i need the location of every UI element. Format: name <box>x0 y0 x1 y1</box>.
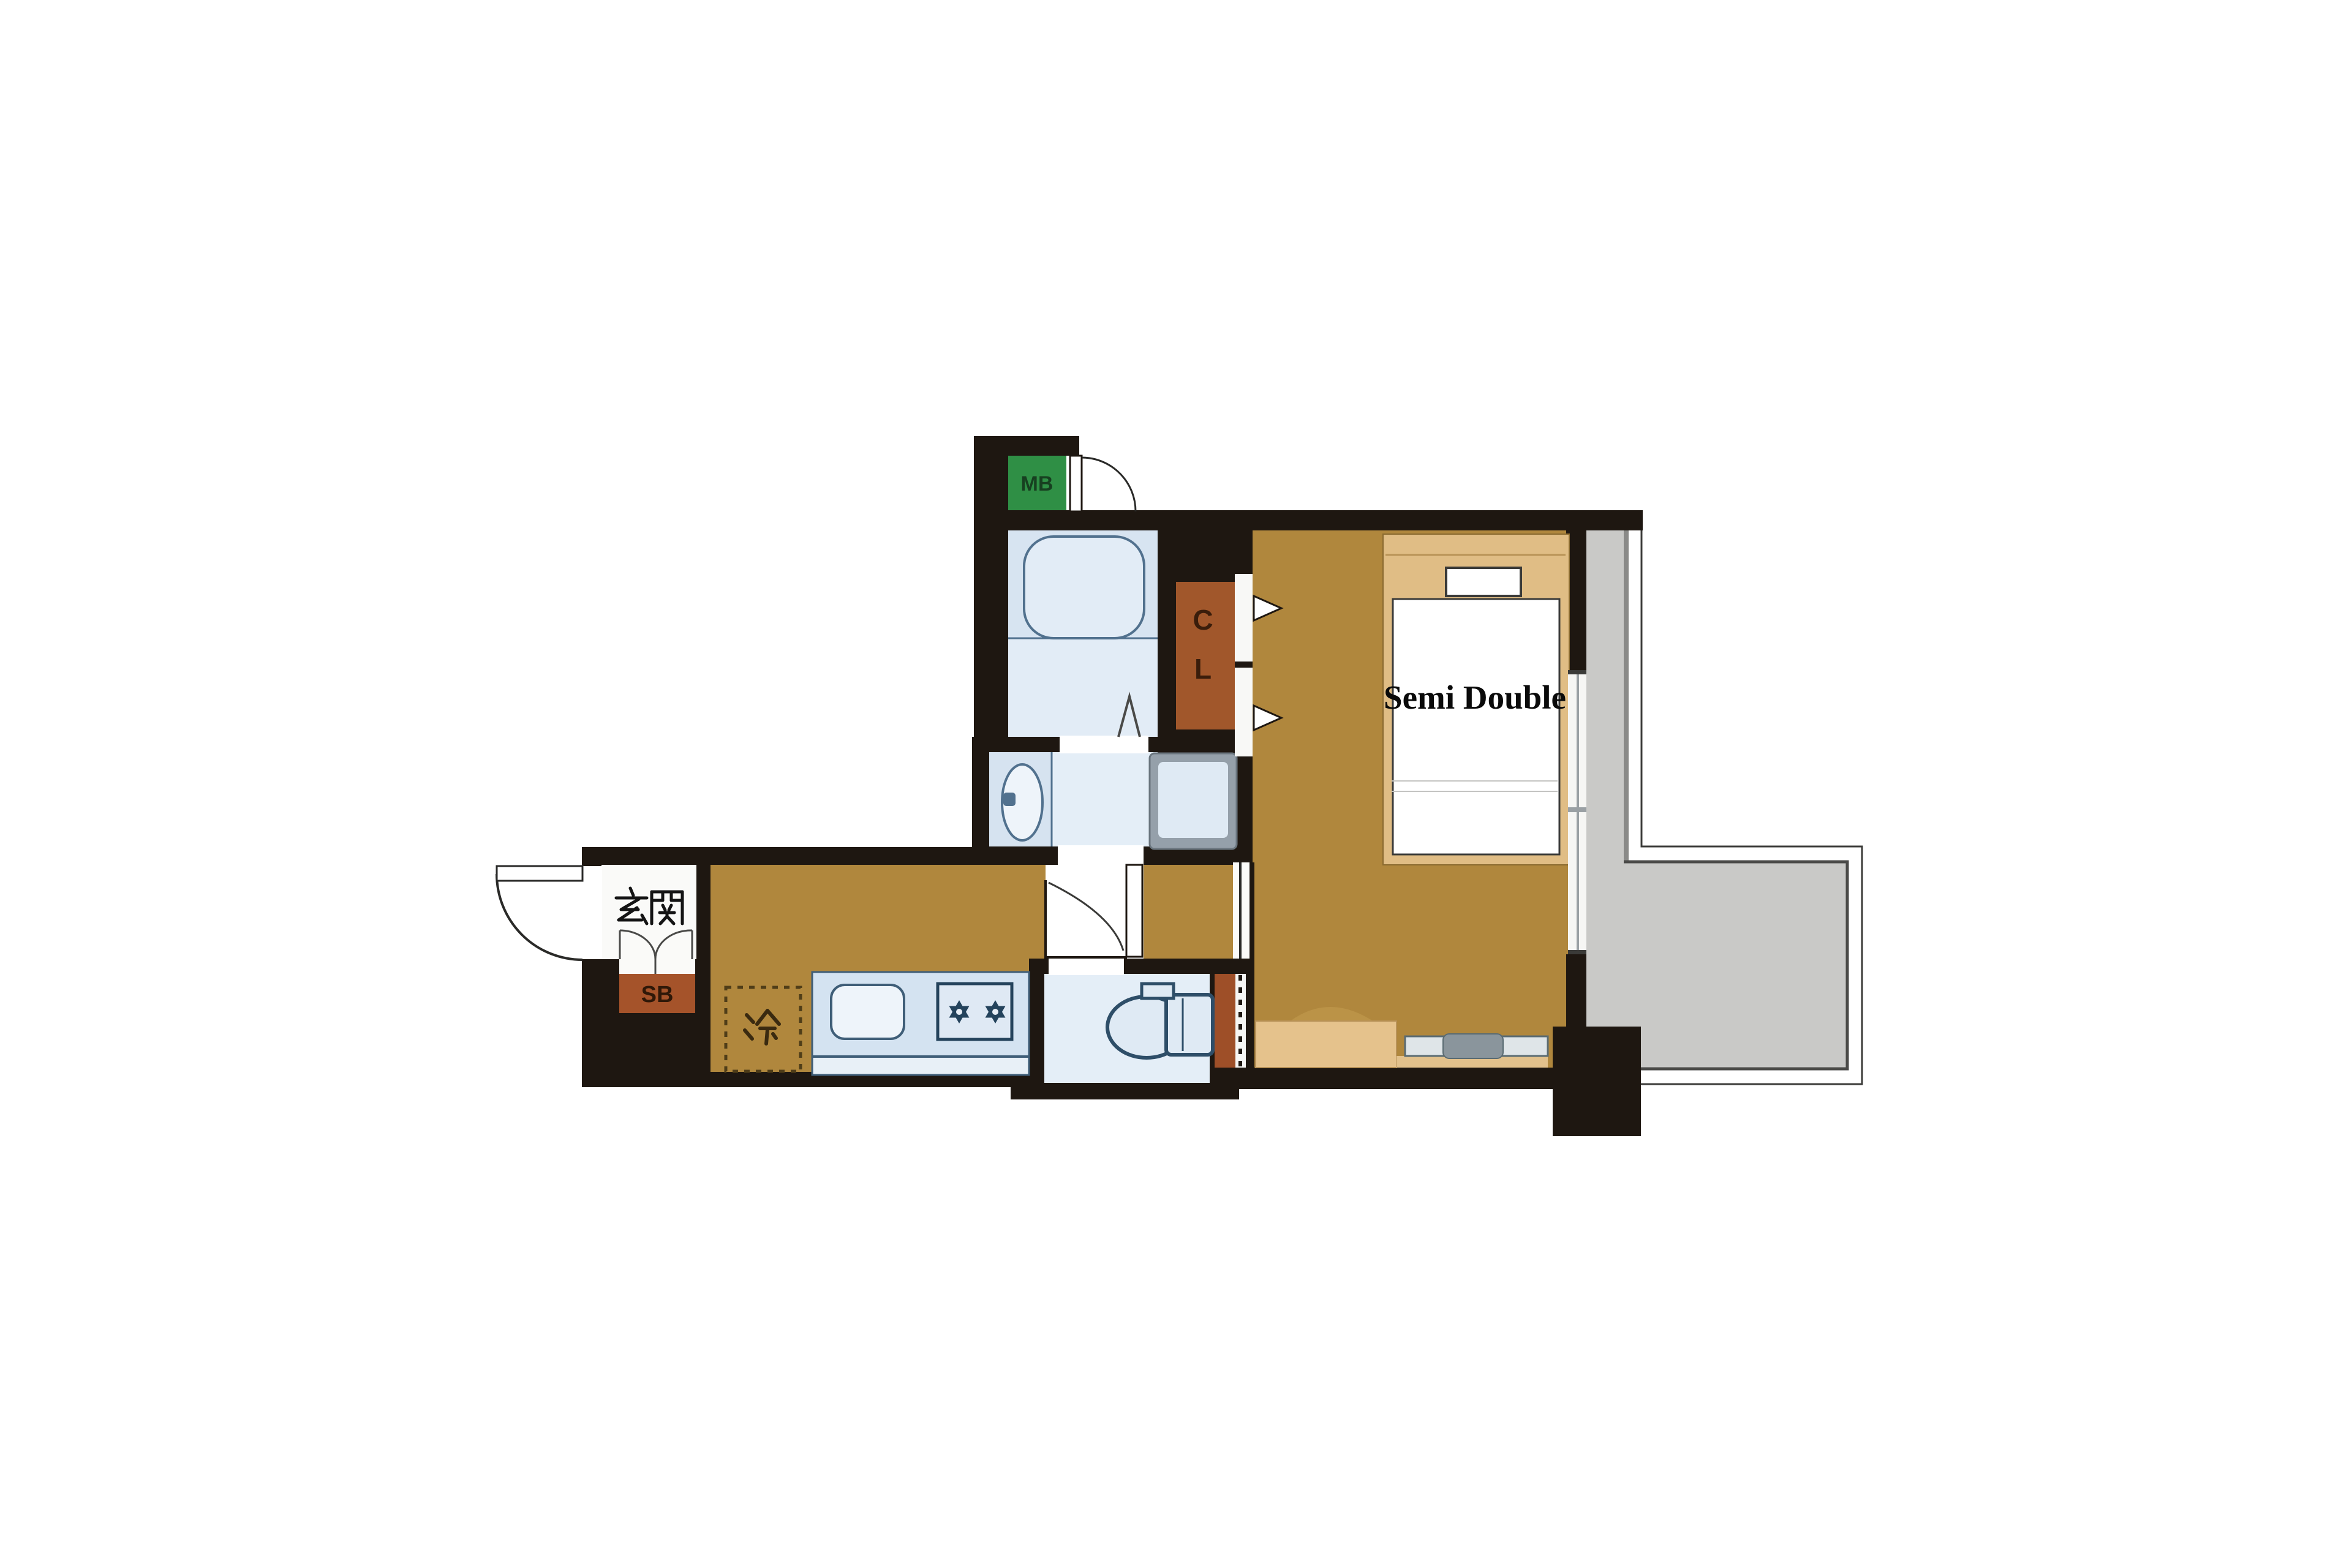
svg-text:C: C <box>1193 604 1213 636</box>
svg-text:SB: SB <box>641 982 674 1008</box>
svg-text:Semi Double: Semi Double <box>1384 679 1566 716</box>
svg-text:L: L <box>1194 653 1212 685</box>
svg-text:MB: MB <box>1021 472 1053 496</box>
